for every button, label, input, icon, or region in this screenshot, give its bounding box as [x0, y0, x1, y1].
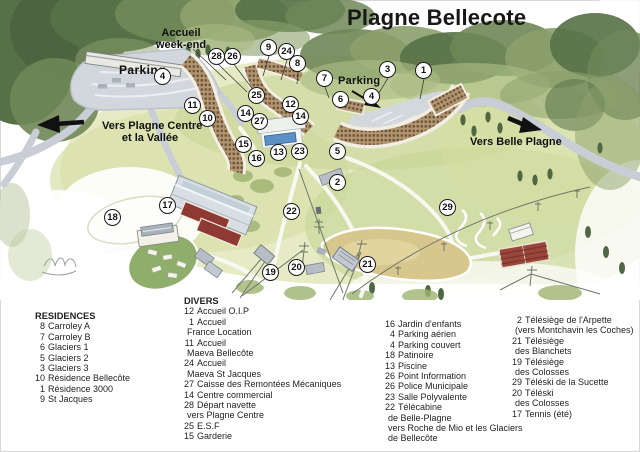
legend-item-label: vers Roche de Mio et les Glaciers [388, 423, 523, 433]
legend-item: 9St Jacques [31, 394, 130, 404]
legend-item: 11Accueil [180, 338, 341, 348]
legend-item: 25E.S.F [180, 421, 341, 431]
legend-item-number: 15 [180, 431, 194, 441]
legend-item-label: de Bellecôte [388, 433, 438, 443]
legend-item-number: 1 [180, 317, 194, 327]
legend-item-label: Parking couvert [398, 340, 461, 350]
legend-item-number: 29 [508, 377, 522, 387]
legend-item: 22Télécabine [381, 402, 523, 412]
legend-item-label: France Location [187, 327, 252, 337]
legend-item-number: 17 [508, 409, 522, 419]
legend-item-label: des Colosses [515, 367, 569, 377]
marker-22: 22 [283, 203, 300, 220]
legend-item-number: 4 [381, 340, 395, 350]
legend-item: des Blanchets [508, 346, 634, 356]
legend-item-number: 8 [31, 321, 45, 331]
legend-item-label: Télésiège de l'Arpette [525, 315, 612, 325]
marker-27: 27 [251, 113, 268, 130]
legend-item-label: Jardin d'enfants [398, 319, 461, 329]
legend-item: 26Police Municipale [381, 381, 523, 391]
marker-29: 29 [439, 199, 456, 216]
legend-item-number: 26 [381, 371, 395, 381]
marker-4-east: 4 [363, 88, 380, 105]
legend-item: Maeva Bellecôte [180, 348, 341, 358]
legend-item: vers Plagne Centre [180, 410, 341, 420]
legend-item: 8Carroley A [31, 321, 130, 331]
marker-18: 18 [104, 209, 121, 226]
legend-item: 10Résidence Bellecôte [31, 373, 130, 383]
marker-15: 15 [235, 136, 252, 153]
marker-25: 25 [248, 87, 265, 104]
marker-9: 9 [260, 39, 277, 56]
legend-item-label: Téléski de la Sucette [525, 377, 609, 387]
marker-4-west: 4 [154, 68, 171, 85]
legend-item-number: 10 [31, 373, 45, 383]
legend-item-number: 23 [381, 392, 395, 402]
legend-item-label: Accueil [197, 338, 226, 348]
legend-residences: RESIDENCES 8Carroley A 7Carroley B 6Glac… [31, 311, 130, 405]
legend-item: 12Accueil O.I.P [180, 306, 341, 316]
marker-16: 16 [248, 150, 265, 167]
legend-column-3: 16Jardin d'enfants 4Parking aérien 4Park… [381, 319, 523, 444]
legend-item-label: Centre commercial [197, 390, 273, 400]
legend-item: 5Glaciers 2 [31, 353, 130, 363]
legend-item: 4Parking couvert [381, 340, 523, 350]
marker-20: 20 [288, 259, 305, 276]
legend-item: des Colosses [508, 367, 634, 377]
label-vers-plagne-line2: et la Vallée [102, 133, 198, 145]
legend-item-number: 20 [508, 388, 522, 398]
legend-item: 29Téléski de la Sucette [508, 377, 634, 387]
legend-item-number: 18 [381, 350, 395, 360]
marker-6: 6 [332, 91, 349, 108]
marker-23: 23 [291, 143, 308, 160]
legend-item-number: 9 [31, 394, 45, 404]
legend-item-number: 6 [31, 342, 45, 352]
marker-10: 10 [199, 110, 216, 127]
legend-item-label: Résidence 3000 [48, 384, 113, 394]
marker-21: 21 [359, 256, 376, 273]
label-accueil-weekend: Accueil week-end [148, 28, 214, 51]
marker-11: 11 [184, 97, 201, 114]
legend-item: 1Accueil [180, 317, 341, 327]
legend-item-label: de Belle-Plagne [388, 413, 452, 423]
legend-item-number: 28 [180, 400, 194, 410]
legend-item-label: Caisse des Remontées Mécaniques [197, 379, 341, 389]
legend-item-number: 21 [508, 336, 522, 346]
label-vers-plagne-centre: Vers Plagne Centre et la Vallée [102, 121, 198, 144]
resort-map-page: Plagne Bellecote Accueil week-end Parkin… [0, 0, 640, 452]
marker-2: 2 [329, 174, 346, 191]
legend-item-number: 25 [180, 421, 194, 431]
marker-5: 5 [329, 143, 346, 160]
legend-item-label: Glaciers 1 [48, 342, 89, 352]
legend-item-label: Piscine [398, 361, 427, 371]
legend-item: 24Accueil [180, 358, 341, 368]
legend-item-label: Garderie [197, 431, 232, 441]
legend-item: 14Centre commercial [180, 390, 341, 400]
page-title: Plagne Bellecote [347, 5, 526, 31]
marker-7: 7 [316, 70, 333, 87]
legend-item-label: Accueil O.I.P [197, 306, 249, 316]
legend-item-label: Parking aérien [398, 329, 456, 339]
legend-item-label: Police Municipale [398, 381, 468, 391]
legend-item-label: vers Plagne Centre [187, 410, 264, 420]
legend-item-label: Maeva Bellecôte [187, 348, 254, 358]
label-parking-east: Parking [338, 76, 380, 88]
legend-item-label: Maeva St Jacques [187, 369, 261, 379]
legend-item: 20Téléski [508, 388, 634, 398]
legend-item-number: 22 [381, 402, 395, 412]
legend-item: 4Parking aérien [381, 329, 523, 339]
legend-item: 13Piscine [381, 361, 523, 371]
legend-item-number: 4 [381, 329, 395, 339]
marker-8: 8 [289, 55, 306, 72]
legend-item-number: 2 [508, 315, 522, 325]
marker-1: 1 [415, 62, 432, 79]
legend-item-label: Départ navette [197, 400, 256, 410]
marker-14-east: 14 [292, 108, 309, 125]
legend-divers-heading: DIVERS [180, 296, 341, 306]
legend-item-label: Point Information [398, 371, 466, 381]
legend-divers: DIVERS 12Accueil O.I.P 1Accueil France L… [180, 296, 341, 441]
legend-item-number: 16 [381, 319, 395, 329]
marker-3: 3 [379, 61, 396, 78]
legend-item-label: Carroley A [48, 321, 90, 331]
legend-item: Maeva St Jacques [180, 369, 341, 379]
legend-item: (vers Montchavin les Coches) [508, 325, 634, 335]
legend-item: 28Départ navette [180, 400, 341, 410]
legend-item-label: St Jacques [48, 394, 93, 404]
legend-item-label: Télésiège [525, 357, 564, 367]
legend-item: 16Jardin d'enfants [381, 319, 523, 329]
legend-item: de Belle-Plagne [381, 413, 523, 423]
legend-item-number: 12 [180, 306, 194, 316]
legend-item: 6Glaciers 1 [31, 342, 130, 352]
legend-item: 15Garderie [180, 431, 341, 441]
legend-item-label: Téléski [525, 388, 554, 398]
marker-19: 19 [262, 264, 279, 281]
legend-item-label: Tennis (été) [525, 409, 572, 419]
legend-item-label: Patinoire [398, 350, 434, 360]
legend-item-label: Glaciers 3 [48, 363, 89, 373]
legend-item-number: 13 [381, 361, 395, 371]
legend-item-number: 7 [31, 332, 45, 342]
legend-item-number: 5 [31, 353, 45, 363]
legend-item: vers Roche de Mio et les Glaciers [381, 423, 523, 433]
legend-item-label: Salle Polyvalente [398, 392, 467, 402]
legend-item: 19Télésiège [508, 357, 634, 367]
legend-item-number: 24 [180, 358, 194, 368]
legend-item: de Bellecôte [381, 433, 523, 443]
legend-item-number: 1 [31, 384, 45, 394]
legend-item: 1Résidence 3000 [31, 384, 130, 394]
legend-item: 7Carroley B [31, 332, 130, 342]
legend-item: 23Salle Polyvalente [381, 392, 523, 402]
legend-item: 3Glaciers 3 [31, 363, 130, 373]
legend-item-label: Résidence Bellecôte [48, 373, 130, 383]
resort-map-illustration [0, 0, 640, 300]
marker-28: 28 [208, 48, 225, 65]
marker-26: 26 [224, 48, 241, 65]
legend-item-label: (vers Montchavin les Coches) [515, 325, 634, 335]
legend-item-number: 27 [180, 379, 194, 389]
legend-item-label: Glaciers 2 [48, 353, 89, 363]
legend-item-label: Carroley B [48, 332, 91, 342]
legend-item-number: 19 [508, 357, 522, 367]
legend-item-number: 14 [180, 390, 194, 400]
legend-item: 21Télésiège [508, 336, 634, 346]
legend-item-label: Télécabine [398, 402, 442, 412]
legend-item-label: E.S.F [197, 421, 220, 431]
legend-item-label: Accueil [197, 317, 226, 327]
legend-item: 27Caisse des Remontées Mécaniques [180, 379, 341, 389]
legend-item: France Location [180, 327, 341, 337]
legend-column-4: 2Télésiège de l'Arpette (vers Montchavin… [508, 315, 634, 419]
legend-item-number: 3 [31, 363, 45, 373]
legend-item: 2Télésiège de l'Arpette [508, 315, 634, 325]
legend-item-number: 11 [180, 338, 194, 348]
label-vers-plagne-line1: Vers Plagne Centre [102, 121, 198, 133]
legend-item-label: Télésiège [525, 336, 564, 346]
legend-item-label: Accueil [197, 358, 226, 368]
label-vers-belle-plagne: Vers Belle Plagne [470, 137, 562, 149]
marker-17: 17 [159, 197, 176, 214]
marker-13: 13 [270, 144, 287, 161]
legend-item: 18Patinoire [381, 350, 523, 360]
legend-item-label: des Colosses [515, 398, 569, 408]
legend-residences-heading: RESIDENCES [31, 311, 130, 321]
legend-item: 17Tennis (été) [508, 409, 634, 419]
gondola-cabin [316, 207, 322, 215]
legend-item-label: des Blanchets [515, 346, 572, 356]
legend-item: des Colosses [508, 398, 634, 408]
legend-item: 26Point Information [381, 371, 523, 381]
label-accueil-line2: week-end [148, 40, 214, 52]
label-accueil-line1: Accueil [148, 28, 214, 40]
legend-item-number: 26 [381, 381, 395, 391]
